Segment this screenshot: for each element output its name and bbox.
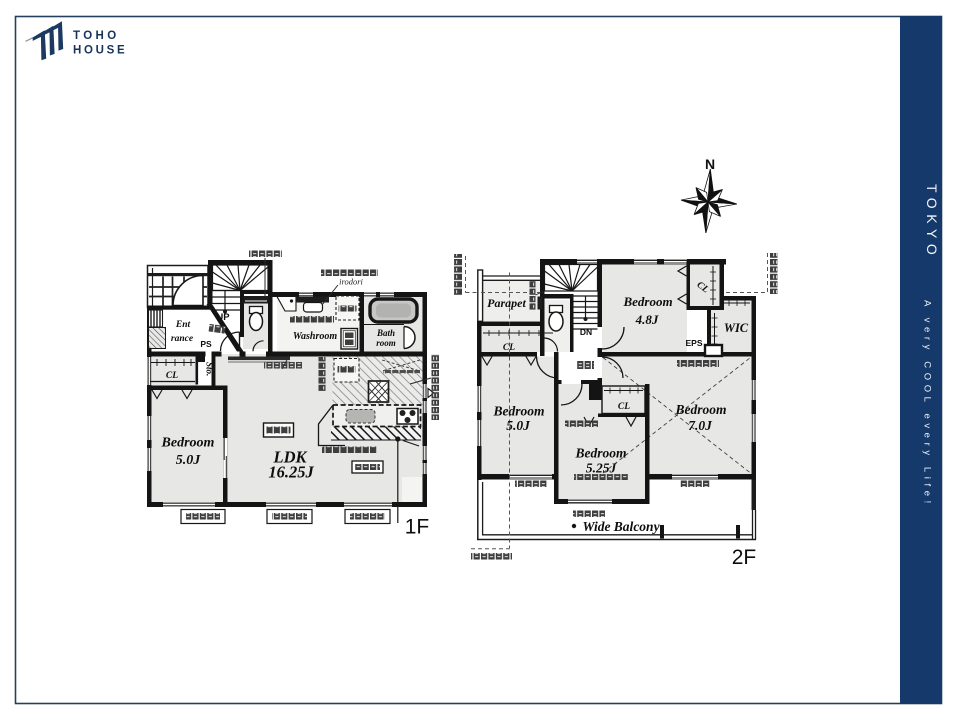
svg-text:Parapet: Parapet [487,296,526,310]
svg-text:Washroom: Washroom [293,331,337,342]
svg-text:5.0J: 5.0J [506,418,531,433]
svg-text:5.0J: 5.0J [176,453,202,468]
svg-text:Bath: Bath [376,328,395,338]
svg-text:DN: DN [580,327,592,337]
svg-text:CL: CL [618,402,630,412]
svg-text:5.25J: 5.25J [586,461,618,476]
svg-text:rance: rance [171,334,194,344]
svg-text:room: room [376,338,396,348]
svg-text:Bedroom: Bedroom [492,404,544,419]
svg-text:WIC: WIC [724,321,749,335]
svg-text:CL: CL [503,343,515,353]
svg-text:7.0J: 7.0J [688,418,713,433]
svg-text:Bedroom: Bedroom [622,294,672,309]
svg-text:EPS: EPS [685,338,702,348]
svg-text:A very COOL every Life!: A very COOL every Life! [922,300,933,508]
svg-text:4.8J: 4.8J [635,312,659,327]
svg-text:Sto.: Sto. [205,362,215,376]
svg-text:irodori: irodori [339,277,363,287]
svg-text:Ent: Ent [175,320,191,330]
svg-text:16.25J: 16.25J [268,463,314,482]
svg-text:Bedroom: Bedroom [674,402,726,417]
svg-text:HOUSE: HOUSE [73,45,127,57]
svg-text:Bedroom: Bedroom [574,446,626,461]
svg-text:N: N [705,156,715,172]
svg-text:UP: UP [216,312,230,323]
svg-text:Wide Balcony: Wide Balcony [582,519,660,534]
svg-text:TOKYO: TOKYO [924,184,940,260]
svg-text:CL: CL [166,371,178,381]
svg-text:PS: PS [200,339,212,349]
svg-text:Bedroom: Bedroom [161,436,215,451]
svg-text:2F: 2F [732,546,757,569]
svg-text:1F: 1F [405,516,430,539]
svg-text:TOHO: TOHO [73,30,120,42]
